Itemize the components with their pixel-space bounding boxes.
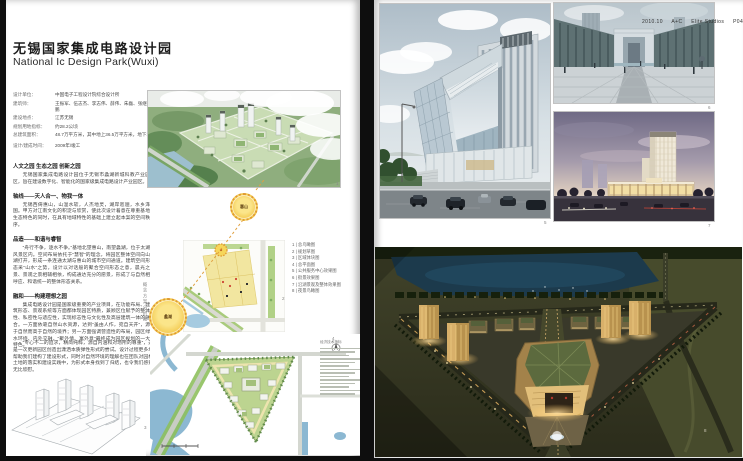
figure-dusk-tower-rendering (554, 112, 714, 221)
gate-building-illustration (380, 4, 550, 218)
figure-gate-building-rendering (380, 4, 550, 218)
right-page: 2010.10 A+C Elite Studios P049 (374, 0, 743, 458)
header-date: 2010.10 (642, 19, 663, 25)
figure-night-aerial-rendering (375, 247, 742, 457)
header-studio: Elite Studios (691, 19, 724, 25)
plaza-illustration (554, 3, 714, 103)
page-header-meta: 2010.10 A+C Elite Studios P049 (642, 19, 743, 25)
figure-number-night: 8 (704, 428, 707, 433)
sun-marker-lihu: 蠡湖 (149, 298, 187, 336)
figure-plaza-rendering (554, 3, 714, 103)
concept-axis-overlay (6, 0, 360, 456)
figure-number-dusk: 7 (708, 223, 711, 228)
left-page: 无锡国家集成电路设计园 National Ic Design Park(Wuxi… (6, 0, 360, 456)
sun-marker-huishan: 惠山 (230, 193, 258, 221)
night-aerial-illustration (375, 247, 742, 457)
figure-number-plaza: 6 (708, 105, 711, 110)
figure-number-gate: 5 (544, 220, 547, 225)
header-page-number: P049 (733, 19, 743, 25)
sun-marker-label: 惠山 (240, 204, 248, 210)
dusk-tower-illustration (554, 112, 714, 221)
sun-marker-label: 蠡湖 (164, 314, 172, 320)
header-brand: A+C (671, 19, 682, 25)
